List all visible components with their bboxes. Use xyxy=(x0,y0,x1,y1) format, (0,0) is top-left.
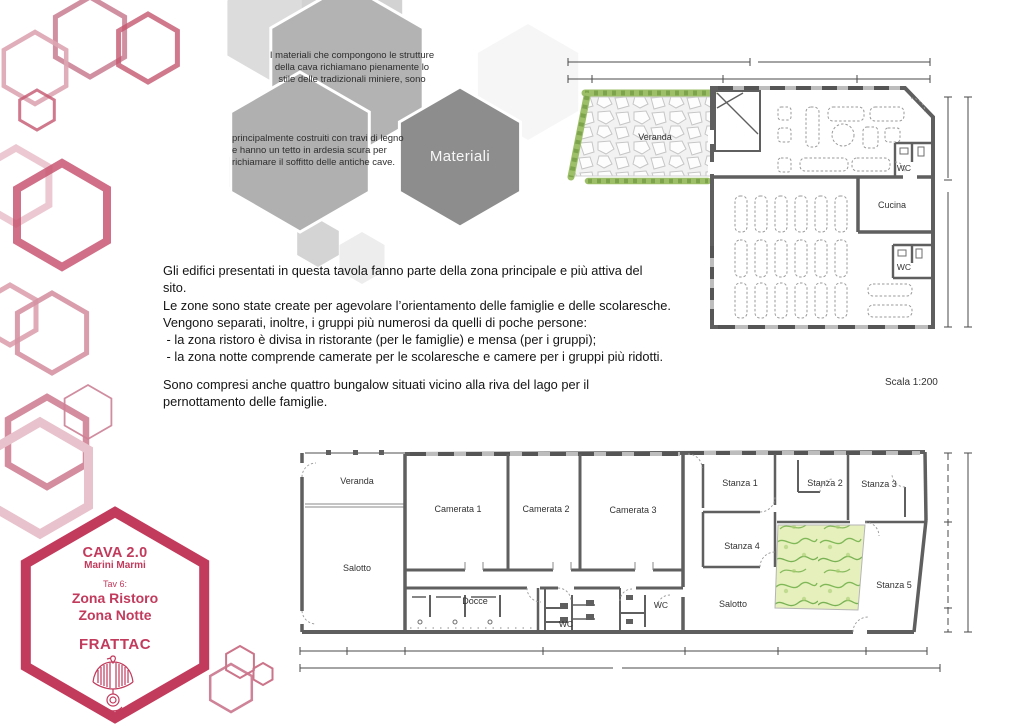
room-label-stanza1: Stanza 1 xyxy=(722,478,758,488)
room-label-wc-lower: WC xyxy=(897,262,911,272)
wc-room-upper: WC xyxy=(895,143,933,177)
room-label-veranda: Veranda xyxy=(638,132,672,142)
room-label-docce: Docce xyxy=(462,596,488,606)
materials-text-line: e hanno un tetto in ardesia scura per xyxy=(232,145,417,157)
dimension-lines-right xyxy=(944,97,972,327)
intro-line: pernottamento delle famiglie. xyxy=(163,393,708,410)
restaurant-tables xyxy=(778,107,904,172)
restaurant-floor-plan: Veranda Cucina xyxy=(560,50,1000,350)
room-label-camerata2: Camerata 2 xyxy=(522,504,569,514)
materials-hexagon-text-1: I materiali che compongono le strutture … xyxy=(262,50,442,86)
room-label-stanza2: Stanza 2 xyxy=(807,478,843,488)
intro-line: - la zona notte comprende camerate per l… xyxy=(163,348,708,365)
sheet-subject-line2: Zona Notte xyxy=(35,607,195,623)
intro-line: Sono compresi anche quattro bungalow sit… xyxy=(163,376,708,393)
sheet-subject-line1: Zona Ristoro xyxy=(35,590,195,606)
room-label-cucina: Cucina xyxy=(878,200,906,210)
room-label-wc-left: WC xyxy=(559,619,573,629)
materials-hexagon-text-2: principalmente costruiti con travi di le… xyxy=(232,133,417,169)
room-label-stanza5: Stanza 5 xyxy=(876,580,912,590)
presentation-board: I materiali che compongono le strutture … xyxy=(0,0,1024,724)
room-label-camerata3: Camerata 3 xyxy=(609,505,656,515)
sheet-number: Tav 6: xyxy=(35,579,195,589)
room-label-veranda-bottom: Veranda xyxy=(340,476,374,486)
intro-line xyxy=(163,366,708,376)
materials-text-line: I materiali che compongono le strutture xyxy=(262,50,442,62)
room-label-stanza4: Stanza 4 xyxy=(724,541,760,551)
room-label-wc-right: WC xyxy=(654,600,668,610)
room-label-stanza3: Stanza 3 xyxy=(861,479,897,489)
kitchen-room: Cucina xyxy=(858,177,933,232)
materials-text-line: stile delle tradizionali miniere, sono xyxy=(262,74,442,86)
project-title: CAVA 2.0 xyxy=(35,545,195,561)
dimension-lines-bottom xyxy=(300,647,940,672)
materials-text-line: della cava richiamano pienamente lo xyxy=(262,62,442,74)
green-courtyard xyxy=(775,525,865,610)
room-label-camerata1: Camerata 1 xyxy=(434,504,481,514)
project-client: Marini Marmi xyxy=(35,560,195,571)
studio-name: FRATTAC xyxy=(35,636,195,653)
dimension-lines-top xyxy=(568,58,930,83)
night-zone-floor-plan: Veranda Salotto Camerata 1 Camerata 2 Ca… xyxy=(290,445,980,685)
eagle-logo-icon xyxy=(90,654,136,716)
veranda-terrace: Veranda xyxy=(571,93,713,181)
materials-text-line: principalmente costruiti con travi di le… xyxy=(232,133,417,145)
room-label-salotto-left: Salotto xyxy=(343,563,371,573)
scale-note: Scala 1:200 xyxy=(885,377,938,388)
materials-text-line: richiamare il soffitto delle antiche cav… xyxy=(232,157,417,169)
dimension-lines-right-bottom xyxy=(944,453,972,632)
materials-hexagon-title: Materiali xyxy=(400,148,520,165)
room-label-salotto-right: Salotto xyxy=(719,599,747,609)
wc-room-lower: WC xyxy=(893,245,933,278)
mensa-tables xyxy=(735,196,912,318)
room-label-wc-upper: WC xyxy=(897,163,911,173)
